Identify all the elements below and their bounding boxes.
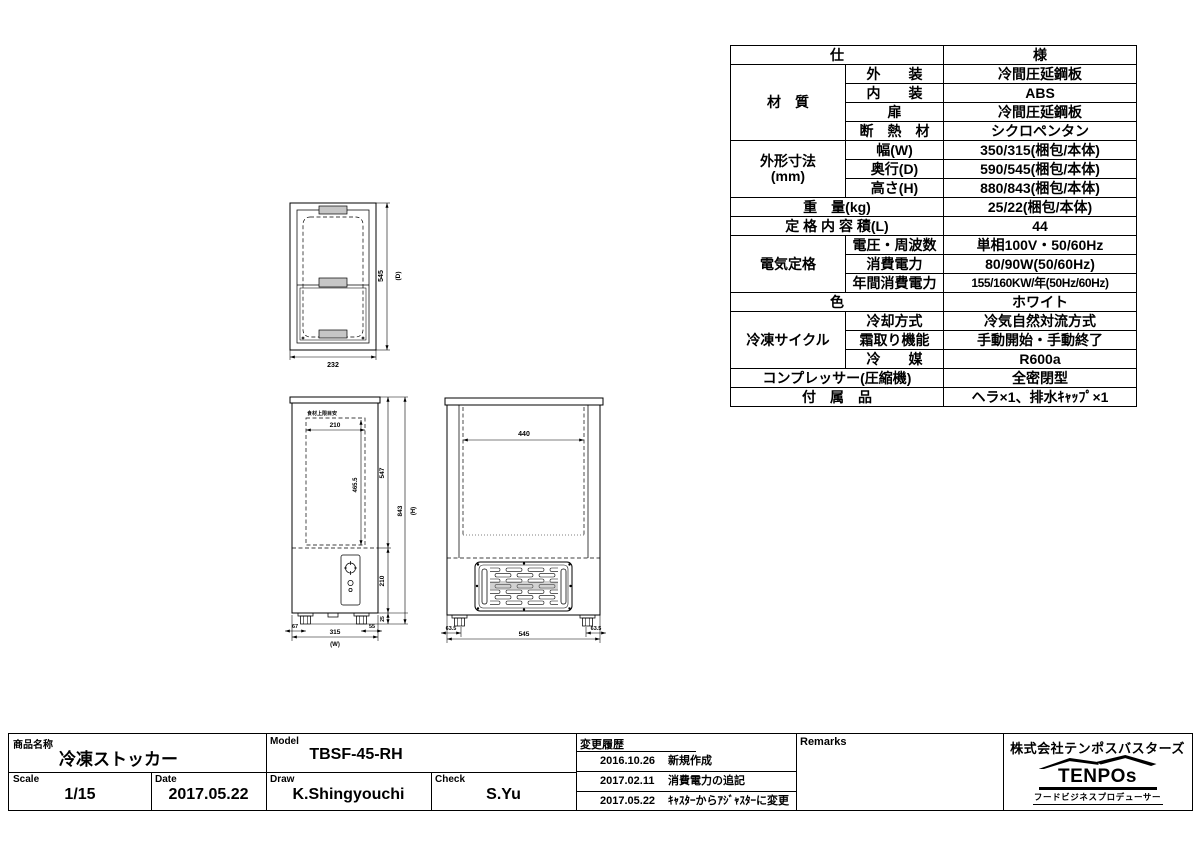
spec-row: 重 量(kg)25/22(梱包/本体) [731,198,1137,217]
draw-cell: Draw K.Shingyouchi [266,772,431,810]
spec-cell: 単相100V・50/60Hz [944,236,1137,255]
spec-row: 電気定格電圧・周波数単相100V・50/60Hz [731,236,1137,255]
spec-cell: 155/160KW/年(50Hz/60Hz) [944,274,1137,293]
food-limit-label: 食材上限目安 [307,410,337,417]
lid-handle [319,278,347,287]
model-cell: Model TBSF-45-RH [266,734,576,772]
spec-row: 材 質外 装冷間圧延鋼板 [731,65,1137,84]
draw-value: K.Shingyouchi [266,786,431,804]
side-view-drawing: 食材上限目安 210 465.5 [265,385,425,655]
side-view-body: 食材上限目安 [290,397,380,624]
date-cell: Date 2017.05.22 [151,772,266,810]
dim-foot-left: 63.5 [446,626,457,632]
lid-handle [319,206,347,214]
change-history-entries: 2016.10.26新規作成2017.02.11消費電力の追記2017.05.2… [576,752,796,811]
title-block: 商品名称 冷凍ストッカー Scale 1/15 Date 2017.05.22 … [8,733,1193,811]
history-date: 2016.10.26 [600,752,668,771]
spec-cell: ヘラ×1、排水ｷｬｯﾌﾟ×1 [944,388,1137,407]
spec-cell: 幅(W) [846,141,944,160]
top-view-drawing: 232 545 (D) [268,192,418,382]
top-view-body [290,203,376,350]
date-value: 2017.05.22 [151,786,266,804]
dim-width: 232 [327,362,339,369]
check-value: S.Yu [431,786,576,804]
dim-inner-width: 440 [518,431,530,438]
lid-handle [319,330,347,338]
remarks-label: Remarks [800,736,846,748]
control-panel [341,555,360,605]
spec-cell: ABS [944,84,1137,103]
model-value: TBSF-45-RH [266,746,446,764]
spec-cell: 冷間圧延鋼板 [944,103,1137,122]
spec-cell: 付 属 品 [731,388,944,407]
spec-cell: 扉 [846,103,944,122]
change-history: 変更履歴 2016.10.26新規作成2017.02.11消費電力の追記2017… [576,734,796,810]
check-cell: Check S.Yu [431,772,576,810]
dim-upper-height: 547 [379,467,386,478]
dim-foot-height: 25 [380,616,386,622]
check-label: Check [435,774,465,785]
dim-inner-height: 465.5 [353,477,359,493]
scale-label: Scale [13,774,39,785]
spec-cell: 年間消費電力 [846,274,944,293]
company-name: 株式会社テンポスバスターズ [1003,738,1192,757]
spec-cell: 電圧・周波数 [846,236,944,255]
dim-foot-left: 67 [292,624,298,630]
spec-cell: 色 [731,293,944,312]
dim-foot-right: 63.5 [591,626,602,632]
side-view-dimensions: 210 465.5 547 210 25 843 (H) 67 55 315 (… [285,397,417,648]
history-date: 2017.05.22 [600,792,668,811]
spec-row: 付 属 品ヘラ×1、排水ｷｬｯﾌﾟ×1 [731,388,1137,407]
spec-cell: 外形寸法 (mm) [731,141,846,198]
spec-cell: 80/90W(50/60Hz) [944,255,1137,274]
spec-cell: 冷却方式 [846,312,944,331]
history-entry: 2017.05.22ｷｬｽﾀｰからｱｼﾞｬｽﾀｰに変更 [576,791,796,811]
history-entry: 2016.10.26新規作成 [576,752,796,771]
product-name: 冷凍ストッカー [59,745,178,770]
draw-label: Draw [270,774,294,785]
spec-cell: 冷気自然対流方式 [944,312,1137,331]
spec-cell: シクロペンタン [944,122,1137,141]
spec-cell: 冷間圧延鋼板 [944,65,1137,84]
adjuster-feet [452,615,595,626]
spec-cell: 消費電力 [846,255,944,274]
spec-table: 仕様材 質外 装冷間圧延鋼板内 装ABS扉冷間圧延鋼板断 熱 材シクロペンタン外… [730,45,1137,407]
spec-cell: 様 [944,46,1137,65]
spec-row: コンプレッサー(圧縮機)全密閉型 [731,369,1137,388]
scale-value: 1/15 [9,786,151,804]
spec-cell: 冷 媒 [846,350,944,369]
company-tagline: フードビジネスプロデューサー [1031,791,1165,803]
spec-row: 仕様 [731,46,1137,65]
spec-row: 冷凍サイクル冷却方式冷気自然対流方式 [731,312,1137,331]
spec-cell: 断 熱 材 [846,122,944,141]
company-cell: 株式会社テンポスバスターズ TENPOs フードビジネスプロデューサー [1003,734,1192,810]
spec-cell: 高さ(H) [846,179,944,198]
spec-cell: 奥行(D) [846,160,944,179]
tenpos-logo: TENPOs フードビジネスプロデューサー [1031,758,1165,805]
history-desc: 消費電力の追記 [668,775,745,787]
spec-cell: 外 装 [846,65,944,84]
history-desc: ｷｬｽﾀｰからｱｼﾞｬｽﾀｰに変更 [668,795,789,807]
spec-cell: コンプレッサー(圧縮機) [731,369,944,388]
spec-cell: 880/843(梱包/本体) [944,179,1137,198]
dim-width-axis: (W) [330,642,340,648]
dim-inner-width: 210 [330,422,341,429]
dim-body-width: 545 [519,631,530,638]
product-name-label: 商品名称 [13,736,53,751]
date-label: Date [155,774,177,785]
spec-cell: 590/545(梱包/本体) [944,160,1137,179]
remarks-cell: Remarks [796,734,1003,810]
spec-row: 定 格 内 容 積(L)44 [731,217,1137,236]
spec-cell: 材 質 [731,65,846,141]
ventilation-grille [475,562,572,611]
front-view-drawing: 440 63.5 63.5 545 [428,385,613,655]
scale-cell: Scale 1/15 [9,772,151,810]
dim-body-width: 315 [330,629,341,636]
spec-row: 外形寸法 (mm)幅(W)350/315(梱包/本体) [731,141,1137,160]
spec-cell: 仕 [731,46,944,65]
spec-cell: 内 装 [846,84,944,103]
spec-cell: 重 量(kg) [731,198,944,217]
spec-cell: 霜取り機能 [846,331,944,350]
spec-row: 色ホワイト [731,293,1137,312]
spec-cell: 44 [944,217,1137,236]
adjuster-feet [298,613,369,624]
dim-machine-height: 210 [379,575,386,586]
change-history-label: 変更履歴 [580,736,624,752]
divider [1033,804,1163,805]
history-date: 2017.02.11 [600,772,668,791]
dim-depth-axis: (D) [395,271,402,280]
spec-cell: 350/315(梱包/本体) [944,141,1137,160]
spec-table-body: 仕様材 質外 装冷間圧延鋼板内 装ABS扉冷間圧延鋼板断 熱 材シクロペンタン外… [731,46,1137,407]
spec-cell: R600a [944,350,1137,369]
spec-cell: 全密閉型 [944,369,1137,388]
drawing-sheet: 仕様材 質外 装冷間圧延鋼板内 装ABS扉冷間圧延鋼板断 熱 材シクロペンタン外… [0,0,1200,848]
dim-depth: 545 [378,270,385,282]
spec-cell: 25/22(梱包/本体) [944,198,1137,217]
spec-cell: 冷凍サイクル [731,312,846,369]
spec-cell: 定 格 内 容 積(L) [731,217,944,236]
history-entry: 2017.02.11消費電力の追記 [576,771,796,791]
pilot-lamp [348,580,353,585]
spec-cell: ホワイト [944,293,1137,312]
dim-foot-right: 55 [369,624,375,630]
divider [1039,787,1157,790]
product-name-cell: 商品名称 冷凍ストッカー [9,734,266,772]
spec-cell: 手動開始・手動終了 [944,331,1137,350]
dim-total-height: 843 [397,505,404,516]
dim-height-axis: (H) [411,507,417,515]
spec-cell: 電気定格 [731,236,846,293]
history-desc: 新規作成 [668,755,712,767]
